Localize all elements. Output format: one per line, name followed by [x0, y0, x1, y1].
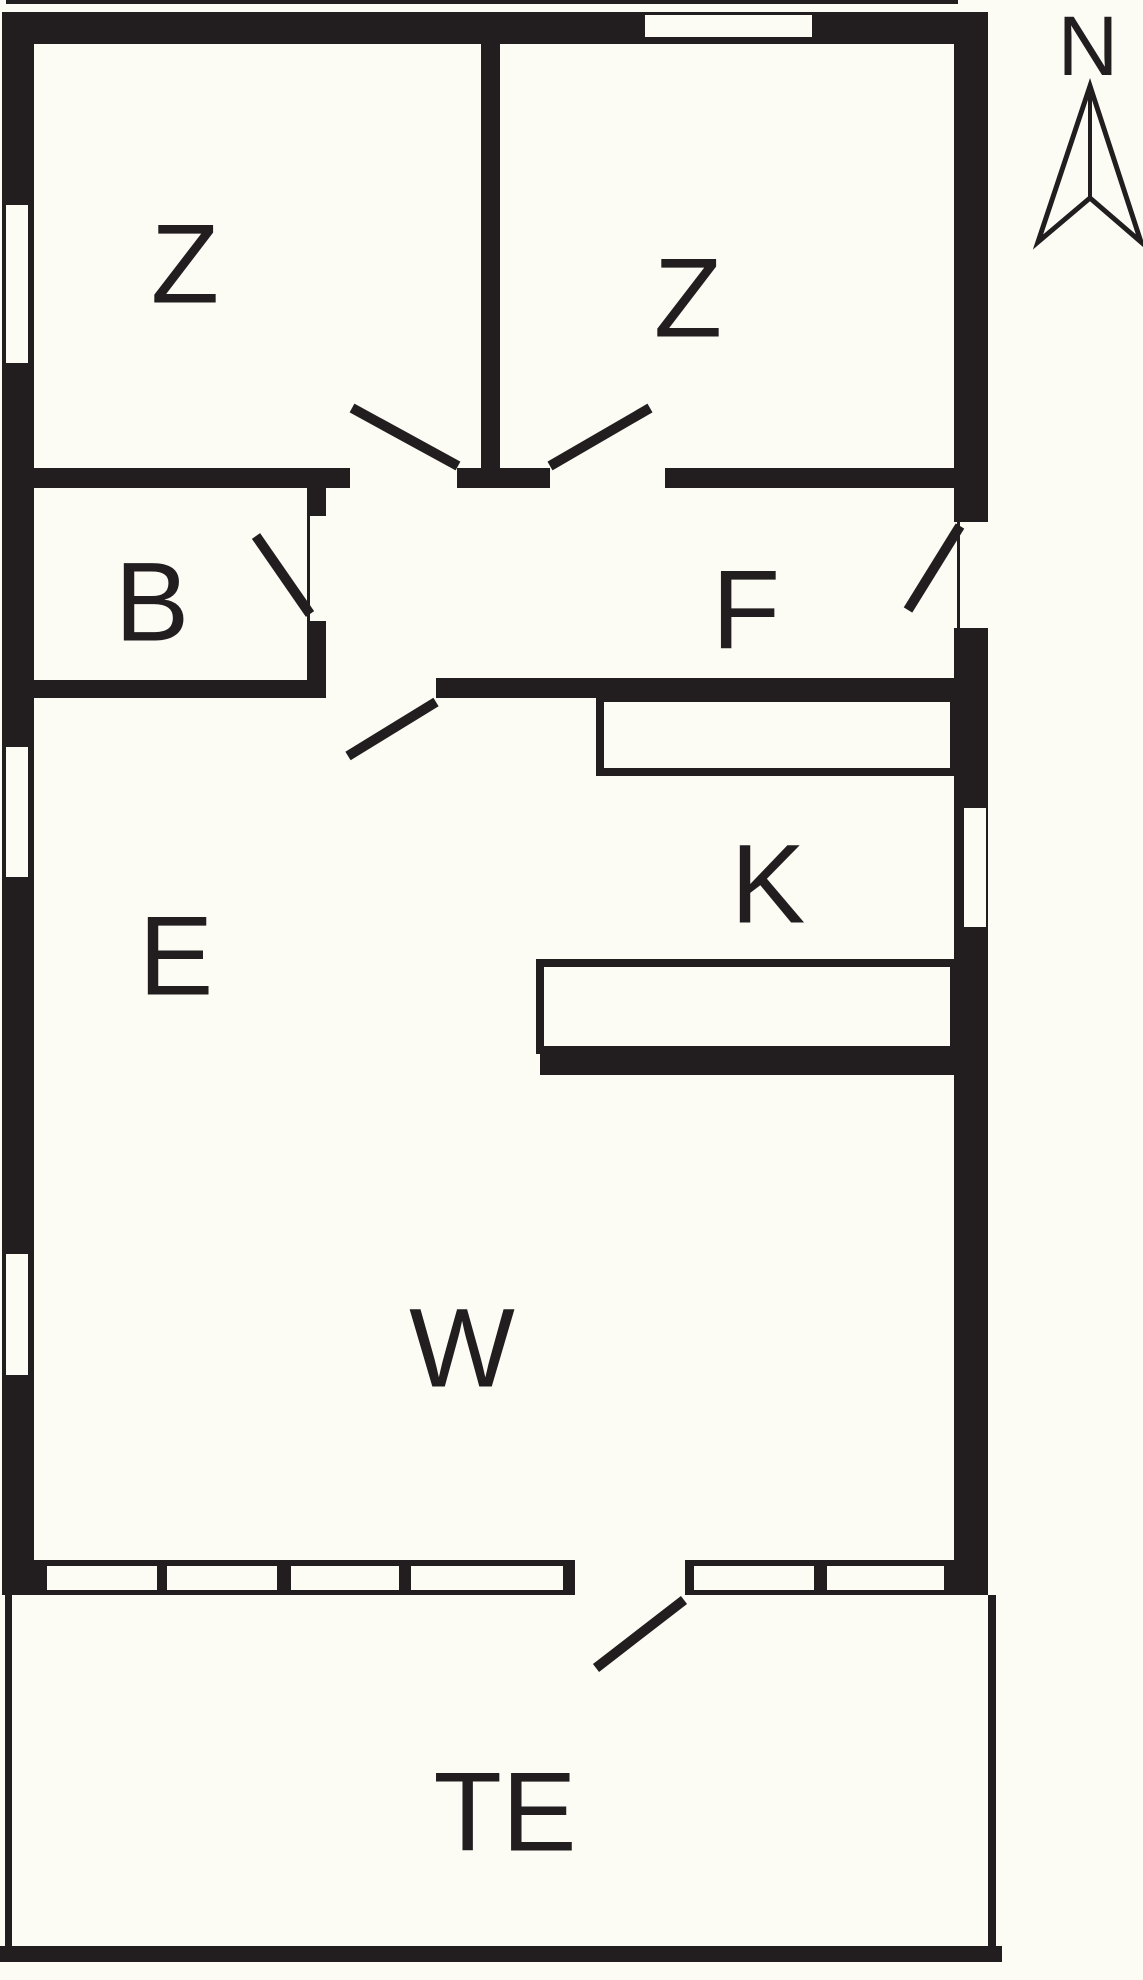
room-label-bedroom-right: Z: [654, 236, 722, 361]
wall-right: [954, 12, 988, 1595]
roof-edge-line: [6, 0, 958, 4]
window-living-left: [6, 1254, 28, 1375]
wall-hall-top-right: [665, 468, 954, 488]
floor-plan-page: ZZBFEKWTEN: [0, 0, 1143, 1980]
terrace-edge-bottom: [0, 1946, 1002, 1962]
window-dining-left: [6, 747, 28, 877]
window-living-bottom-3: [291, 1566, 399, 1590]
window-bedroom-right-top: [645, 15, 812, 37]
wall-bedroom-divider: [481, 44, 500, 468]
room-label-hall: F: [712, 548, 780, 673]
kitchen-counter-lower: [540, 963, 954, 1050]
room-label-kitchen: K: [731, 822, 806, 947]
window-living-bottom-5: [694, 1566, 814, 1590]
window-living-bottom-6: [827, 1566, 944, 1590]
room-label-bathroom: B: [115, 540, 190, 665]
wall-hall-top-stub: [457, 468, 550, 488]
opening-terrace-door: [575, 1560, 685, 1595]
window-living-bottom-2: [167, 1566, 277, 1590]
room-label-bedroom-left: Z: [151, 202, 219, 327]
room-label-terrace: TE: [433, 1750, 576, 1875]
window-living-bottom-4: [411, 1566, 563, 1590]
wall-bath-right-lower: [307, 621, 326, 680]
wall-bath-right-upper: [307, 488, 326, 516]
wall-top: [2, 12, 988, 44]
compass-label: N: [1058, 0, 1119, 93]
wall-hall-top-left: [34, 468, 350, 488]
floor-plan-svg: ZZBFEKWTEN: [0, 0, 1143, 1980]
kitchen-counter-upper: [600, 698, 954, 772]
terrace-edge-right: [988, 1595, 996, 1948]
room-label-dining: E: [139, 894, 214, 1019]
window-kitchen-right: [964, 808, 986, 927]
window-living-bottom-1: [47, 1566, 157, 1590]
terrace-edge-left: [5, 1595, 12, 1948]
window-bedroom-left: [6, 205, 28, 363]
wall-bath-bottom: [34, 680, 326, 698]
room-label-living: W: [409, 1286, 515, 1411]
